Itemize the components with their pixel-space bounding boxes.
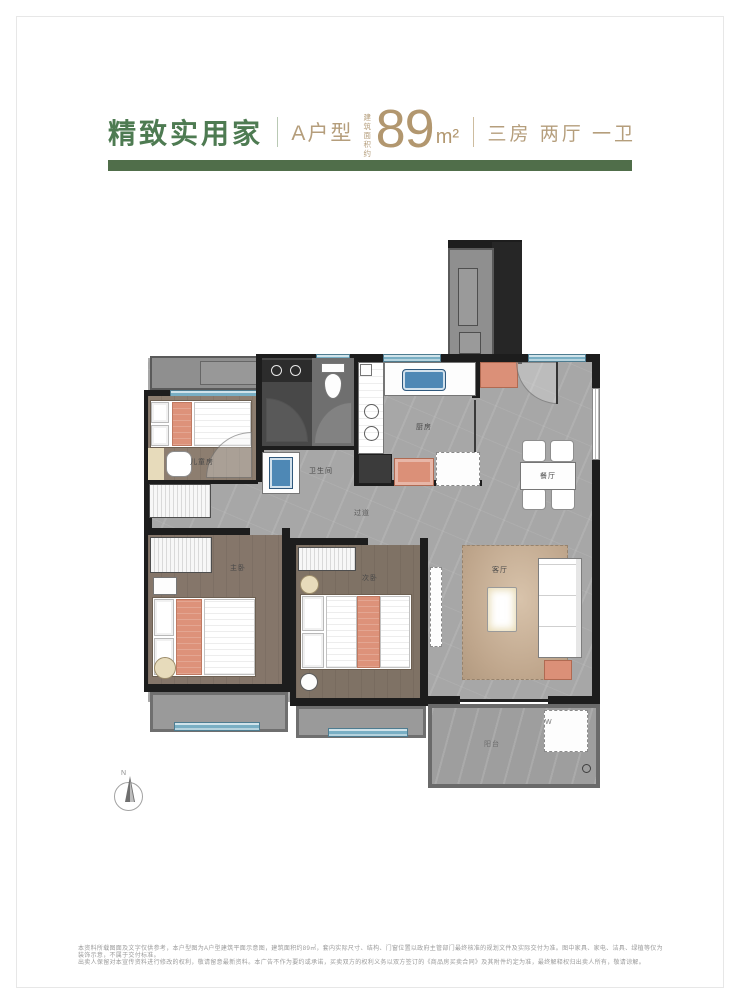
- floor-plan: 儿童房 卫生间 厨房: [140, 230, 602, 805]
- wall: [426, 696, 460, 704]
- pillow: [302, 633, 324, 668]
- wall: [148, 684, 290, 692]
- window: [174, 722, 260, 731]
- entry-door-leaf: [556, 362, 558, 404]
- area-prefix-line2: 面积约: [363, 131, 373, 158]
- chair: [166, 451, 192, 477]
- layout-label: 三房 两厅 一卫: [487, 119, 636, 146]
- washing-machine-label: W: [545, 719, 553, 726]
- blanket: [176, 599, 202, 675]
- nightstand: [153, 577, 177, 595]
- elevator-icon: [458, 268, 478, 326]
- rug: [148, 448, 164, 480]
- room-label-second: 次卧: [362, 573, 378, 583]
- washing-machine: W: [544, 710, 588, 752]
- mop-sink: [269, 457, 293, 489]
- ottoman: [544, 660, 572, 680]
- dining-chair: [522, 440, 546, 462]
- fridge-cabinet: [436, 452, 480, 486]
- unit-type-label: A户型: [291, 117, 353, 147]
- kitchen-sink: [402, 369, 446, 391]
- disclaimer-line1: 本资料所载图面及文字仅供参考，本户型图为A户型建筑平面示意图，建筑面积约89㎡，…: [78, 946, 664, 960]
- blanket: [172, 402, 192, 446]
- disclaimer: 本资料所载图面及文字仅供参考，本户型图为A户型建筑平面示意图，建筑面积约89㎡，…: [78, 946, 664, 967]
- room-label-kitchen: 厨房: [416, 422, 432, 432]
- wardrobe: [298, 547, 356, 571]
- room-label-hallway: 过道: [354, 508, 370, 518]
- bed-sheet: [380, 596, 410, 668]
- shaft-x-icon: [459, 332, 481, 354]
- basin-icon: [271, 365, 282, 376]
- blanket: [357, 596, 380, 668]
- round-rug: [300, 575, 319, 594]
- dining-chair: [550, 440, 574, 462]
- compass-icon: N: [112, 774, 146, 812]
- pillow: [154, 599, 174, 636]
- small-appliance: [360, 364, 372, 376]
- page-title: 精致实用家: [108, 112, 263, 152]
- wall: [282, 528, 290, 692]
- dining-chair: [551, 487, 575, 510]
- nightstand: [300, 673, 318, 691]
- room-label-master: 主卧: [230, 563, 246, 573]
- floor-drain-icon: [582, 764, 591, 773]
- tv-cabinet: [430, 567, 442, 647]
- pillow: [151, 425, 169, 446]
- round-rug: [154, 657, 176, 679]
- wall: [548, 696, 600, 704]
- sofa: [538, 558, 582, 658]
- window: [528, 354, 586, 362]
- room-label-balcony: 阳台: [484, 739, 500, 749]
- balcony-sliding-door: [458, 699, 550, 702]
- area-unit: m²: [436, 126, 459, 149]
- area-prefix: 建筑 面积约: [363, 113, 373, 158]
- toilet-tank: [321, 363, 345, 373]
- header: 精致实用家 A户型 建筑 面积约 89 m² 三房 两厅 一卫: [108, 106, 636, 158]
- hob-burner-icon: [364, 404, 379, 419]
- wall: [148, 528, 250, 535]
- bed-sheet: [204, 599, 255, 675]
- wardrobe: [149, 484, 211, 518]
- stove-cabinet: [394, 458, 434, 486]
- kitchen-base-cabinet: [358, 454, 392, 484]
- area-prefix-line1: 建筑: [363, 113, 373, 131]
- dining-chair: [522, 488, 546, 510]
- page: 精致实用家 A户型 建筑 面积约 89 m² 三房 两厅 一卫: [0, 0, 740, 1004]
- header-underline-bar: [108, 160, 632, 171]
- room-label-bathroom: 卫生间: [309, 466, 333, 476]
- wall: [290, 698, 426, 706]
- pillow: [302, 596, 324, 631]
- bed-sheet: [326, 596, 357, 668]
- stair-shaft: [492, 242, 522, 364]
- disclaimer-line2: 出卖人保留对本宣传资料进行修改的权利，敬请留意最新资料。本广告不作为要约或承诺，…: [78, 960, 664, 967]
- bathroom-vanity: [262, 360, 312, 382]
- window: [383, 354, 441, 362]
- wall: [290, 538, 368, 545]
- compass-needle-highlight: [130, 780, 134, 802]
- room-label-dining: 餐厅: [540, 471, 556, 481]
- area-value: 89: [376, 104, 434, 154]
- room-label-living: 客厅: [492, 565, 508, 575]
- wardrobe: [150, 537, 212, 573]
- basin-icon: [290, 365, 301, 376]
- hob-burner-icon: [364, 426, 379, 441]
- coffee-table: [487, 587, 517, 632]
- kitchen-sliding-partition: [474, 400, 476, 456]
- room-label-bedroom-top: 儿童房: [190, 457, 214, 467]
- window: [592, 388, 600, 460]
- shoe-cabinet: [480, 362, 518, 388]
- window: [328, 728, 408, 737]
- wall: [420, 538, 428, 706]
- pillow: [151, 402, 169, 423]
